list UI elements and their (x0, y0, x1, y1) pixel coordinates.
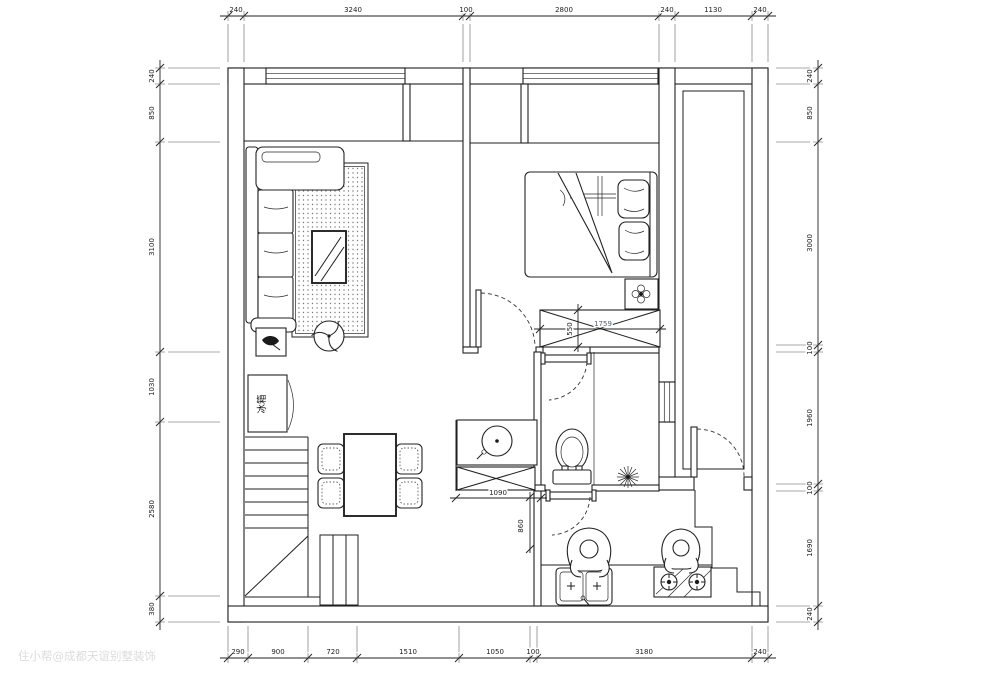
dim-right-2: 3000 (806, 234, 814, 252)
bathroom-door-north (541, 353, 591, 400)
dim-bottom-5: 100 (526, 648, 539, 656)
dim-right-7: 240 (806, 607, 814, 620)
floor-plan-drawing: 240 3240 100 2800 240 1130 240 290 900 7… (0, 0, 984, 686)
dim-bottom-4: 1050 (486, 648, 504, 656)
dim-right-5: 100 (806, 481, 814, 494)
bedroom-door (476, 290, 535, 347)
burner (661, 574, 677, 590)
dim-right-4: 1960 (806, 409, 814, 427)
person-washing (567, 528, 610, 577)
dim-left-1: 850 (148, 106, 156, 119)
dim-wardrobe-width: 1759 (594, 320, 612, 328)
dim-right-0: 240 (806, 69, 814, 82)
dim-kitchen-passage: 860 (517, 519, 525, 532)
dining-chair (396, 444, 422, 474)
balcony-void (683, 91, 744, 469)
dining-table (344, 434, 396, 516)
dim-left-4: 2580 (148, 500, 156, 518)
dim-wardrobe-depth: 550 (566, 322, 574, 335)
dim-top-6: 240 (753, 6, 766, 14)
dim-cabinet-width: 1090 (489, 489, 507, 497)
pillow (618, 180, 649, 218)
storage-cabinet: 1090 860 (450, 467, 547, 553)
burner (689, 574, 705, 590)
person-cooking (662, 529, 700, 573)
dim-bottom-2: 720 (326, 648, 339, 656)
toilet (553, 429, 591, 484)
dim-left-2: 3100 (148, 238, 156, 256)
dining-set (318, 434, 422, 516)
window-living-north (266, 68, 405, 84)
dim-top-4: 240 (660, 6, 673, 14)
dim-top-2: 100 (459, 6, 472, 14)
dim-top-5: 1130 (704, 6, 722, 14)
dim-bottom-1: 900 (271, 648, 284, 656)
dimension-line-bottom: 290 900 720 1510 1050 100 3180 240 (220, 648, 776, 663)
dim-left-3: 1030 (148, 378, 156, 396)
plant (617, 466, 639, 488)
dim-bottom-6: 3180 (635, 648, 653, 656)
coffee-table (312, 231, 346, 283)
pillow (619, 222, 649, 260)
dim-top-3: 2800 (555, 6, 573, 14)
dim-right-6: 1690 (806, 539, 814, 557)
dim-bottom-3: 1510 (399, 648, 417, 656)
dimension-line-right: 240 850 3000 100 1960 100 1690 240 (806, 60, 823, 630)
dim-bottom-7: 240 (753, 648, 766, 656)
dim-top-0: 240 (229, 6, 242, 14)
refrigerator: 冰箱 (248, 375, 294, 432)
floor-plan-page: 240 3240 100 2800 240 1130 240 290 900 7… (0, 0, 984, 686)
double-bed (525, 172, 657, 277)
window-bathroom-east (659, 382, 675, 422)
dimension-line-top: 240 3240 100 2800 240 1130 240 (220, 6, 776, 21)
nightstand-plant (625, 279, 658, 309)
dim-right-3: 100 (806, 341, 814, 354)
dining-chair (396, 478, 422, 508)
dim-bottom-0: 290 (231, 648, 244, 656)
dining-chair (318, 444, 344, 474)
watermark: 住小帮@成都天谊别墅装饰 (18, 649, 156, 663)
window-bedroom-north (523, 68, 658, 84)
dim-top-1: 3240 (344, 6, 362, 14)
dining-chair (318, 478, 344, 508)
dimension-line-left: 240 850 3100 1030 2580 380 (148, 60, 165, 630)
side-table-plant (256, 328, 286, 356)
wardrobe-overhead-cabinet: 1759 550 (534, 304, 666, 352)
dim-left-0: 240 (148, 69, 156, 82)
fridge-label: 冰箱 (256, 394, 268, 413)
washbasin-counter (457, 420, 537, 465)
dim-right-1: 850 (806, 106, 814, 119)
dim-left-5: 380 (148, 602, 156, 615)
